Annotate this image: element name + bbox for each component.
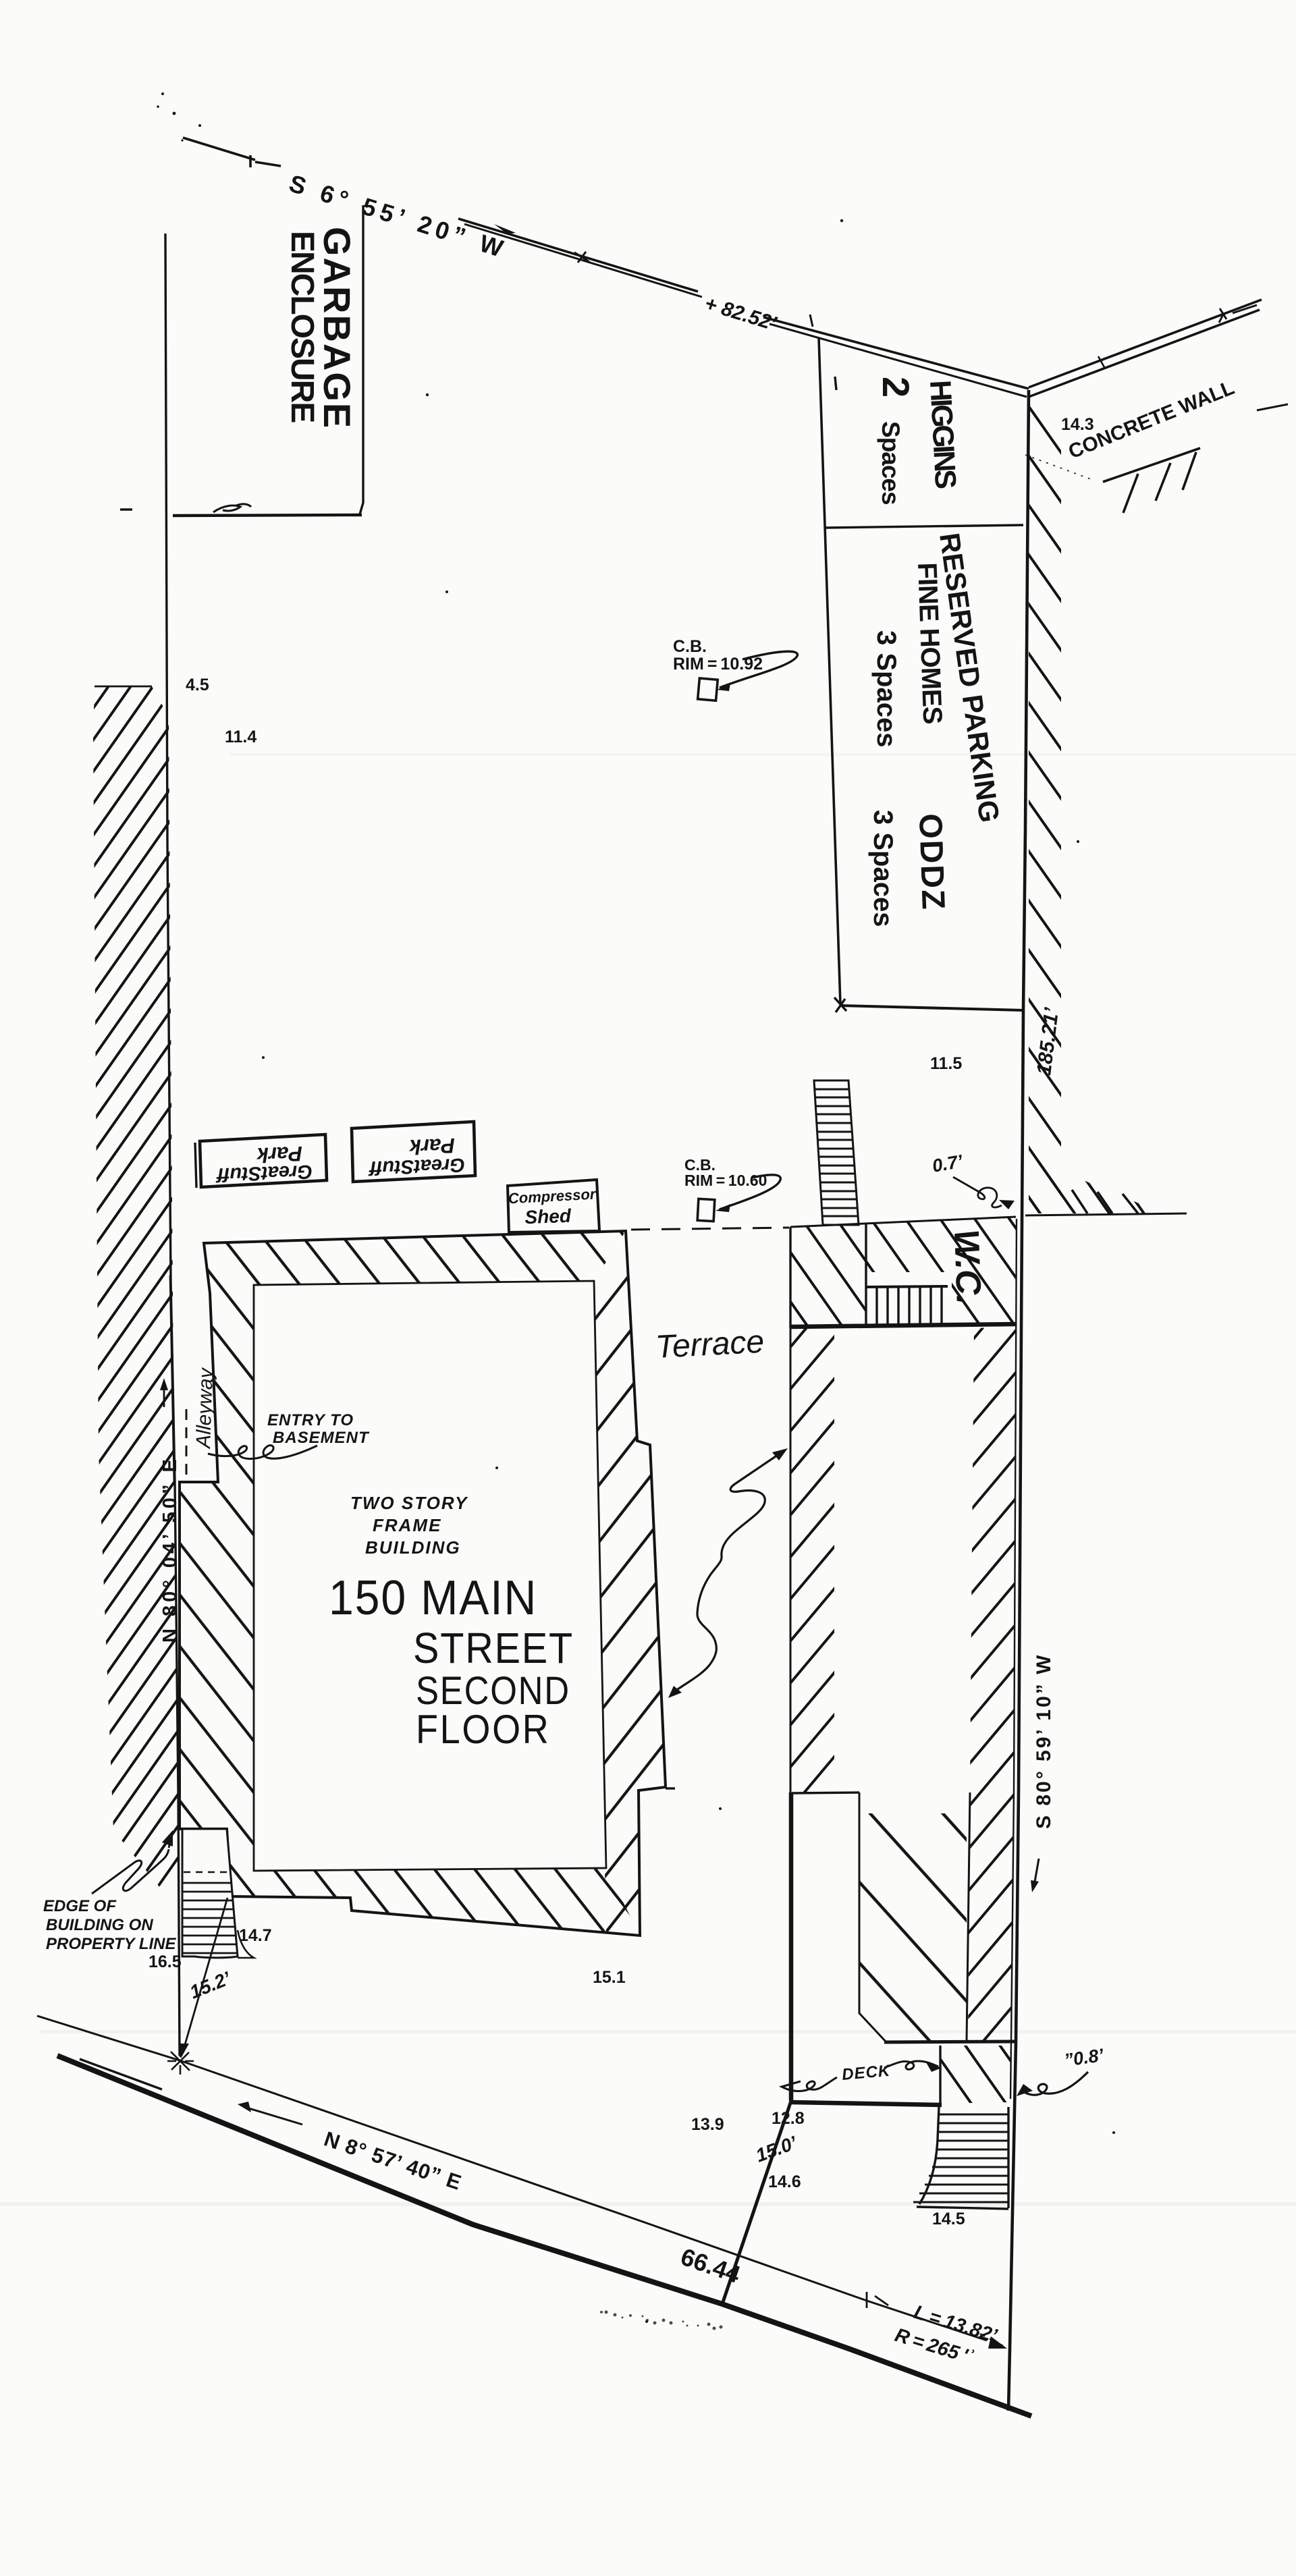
svg-text:Park: Park <box>408 1134 455 1159</box>
svg-text:C.B.: C.B. <box>673 637 707 656</box>
svg-text:HIGGINS: HIGGINS <box>923 379 962 489</box>
svg-text:2: 2 <box>875 377 917 398</box>
svg-text:3 Spaces: 3 Spaces <box>868 810 898 927</box>
svg-text:14.7: 14.7 <box>239 1926 272 1945</box>
svg-text:ENCLOSURE: ENCLOSURE <box>284 231 320 422</box>
svg-text:14.6: 14.6 <box>768 2172 801 2191</box>
svg-text:12.8: 12.8 <box>772 2109 805 2128</box>
svg-text:13.9: 13.9 <box>691 2115 724 2134</box>
svg-text:14.5: 14.5 <box>932 2210 965 2228</box>
svg-text:4.5: 4.5 <box>186 676 209 694</box>
svg-text:ODDZ: ODDZ <box>912 813 951 912</box>
svg-text:BUILDING ON: BUILDING ON <box>46 1916 153 1934</box>
svg-text:TWO STORY: TWO STORY <box>350 1493 468 1513</box>
svg-text:STREET: STREET <box>413 1624 574 1672</box>
svg-text:11.4: 11.4 <box>225 728 256 746</box>
svg-text:BUILDING: BUILDING <box>365 1537 461 1558</box>
svg-text:Terrace: Terrace <box>655 1324 765 1365</box>
svg-text:11.5: 11.5 <box>930 1054 962 1073</box>
svg-text:15.1: 15.1 <box>593 1968 626 1987</box>
svg-text:RIM = 10.60: RIM = 10.60 <box>684 1172 767 1189</box>
svg-text:W.C.: W.C. <box>946 1228 988 1305</box>
svg-text:EDGE OF: EDGE OF <box>43 1897 117 1915</box>
svg-text:Spaces: Spaces <box>877 421 905 505</box>
svg-text:FINE HOMES: FINE HOMES <box>912 562 947 725</box>
svg-text:150 MAIN: 150 MAIN <box>329 1570 537 1624</box>
svg-text:Alleyway: Alleyway <box>192 1367 217 1450</box>
svg-text:ENTRY TO: ENTRY TO <box>267 1411 354 1429</box>
svg-text:16.5: 16.5 <box>148 1952 182 1971</box>
svg-text:SECOND: SECOND <box>416 1669 570 1713</box>
svg-text:3 Spaces: 3 Spaces <box>871 630 901 747</box>
svg-text:Shed: Shed <box>524 1205 572 1228</box>
svg-text:Park: Park <box>255 1142 302 1167</box>
svg-text:14.3: 14.3 <box>1061 415 1094 434</box>
svg-text:FLOOR: FLOOR <box>416 1707 550 1752</box>
svg-text:BASEMENT: BASEMENT <box>273 1429 370 1447</box>
svg-text:FRAME: FRAME <box>373 1515 441 1535</box>
svg-text:GARBAGE: GARBAGE <box>316 227 358 429</box>
svg-text:PROPERTY LINE: PROPERTY LINE <box>46 1935 176 1953</box>
svg-text:S 80° 59’ 10” W: S 80° 59’ 10” W <box>1033 1653 1055 1829</box>
